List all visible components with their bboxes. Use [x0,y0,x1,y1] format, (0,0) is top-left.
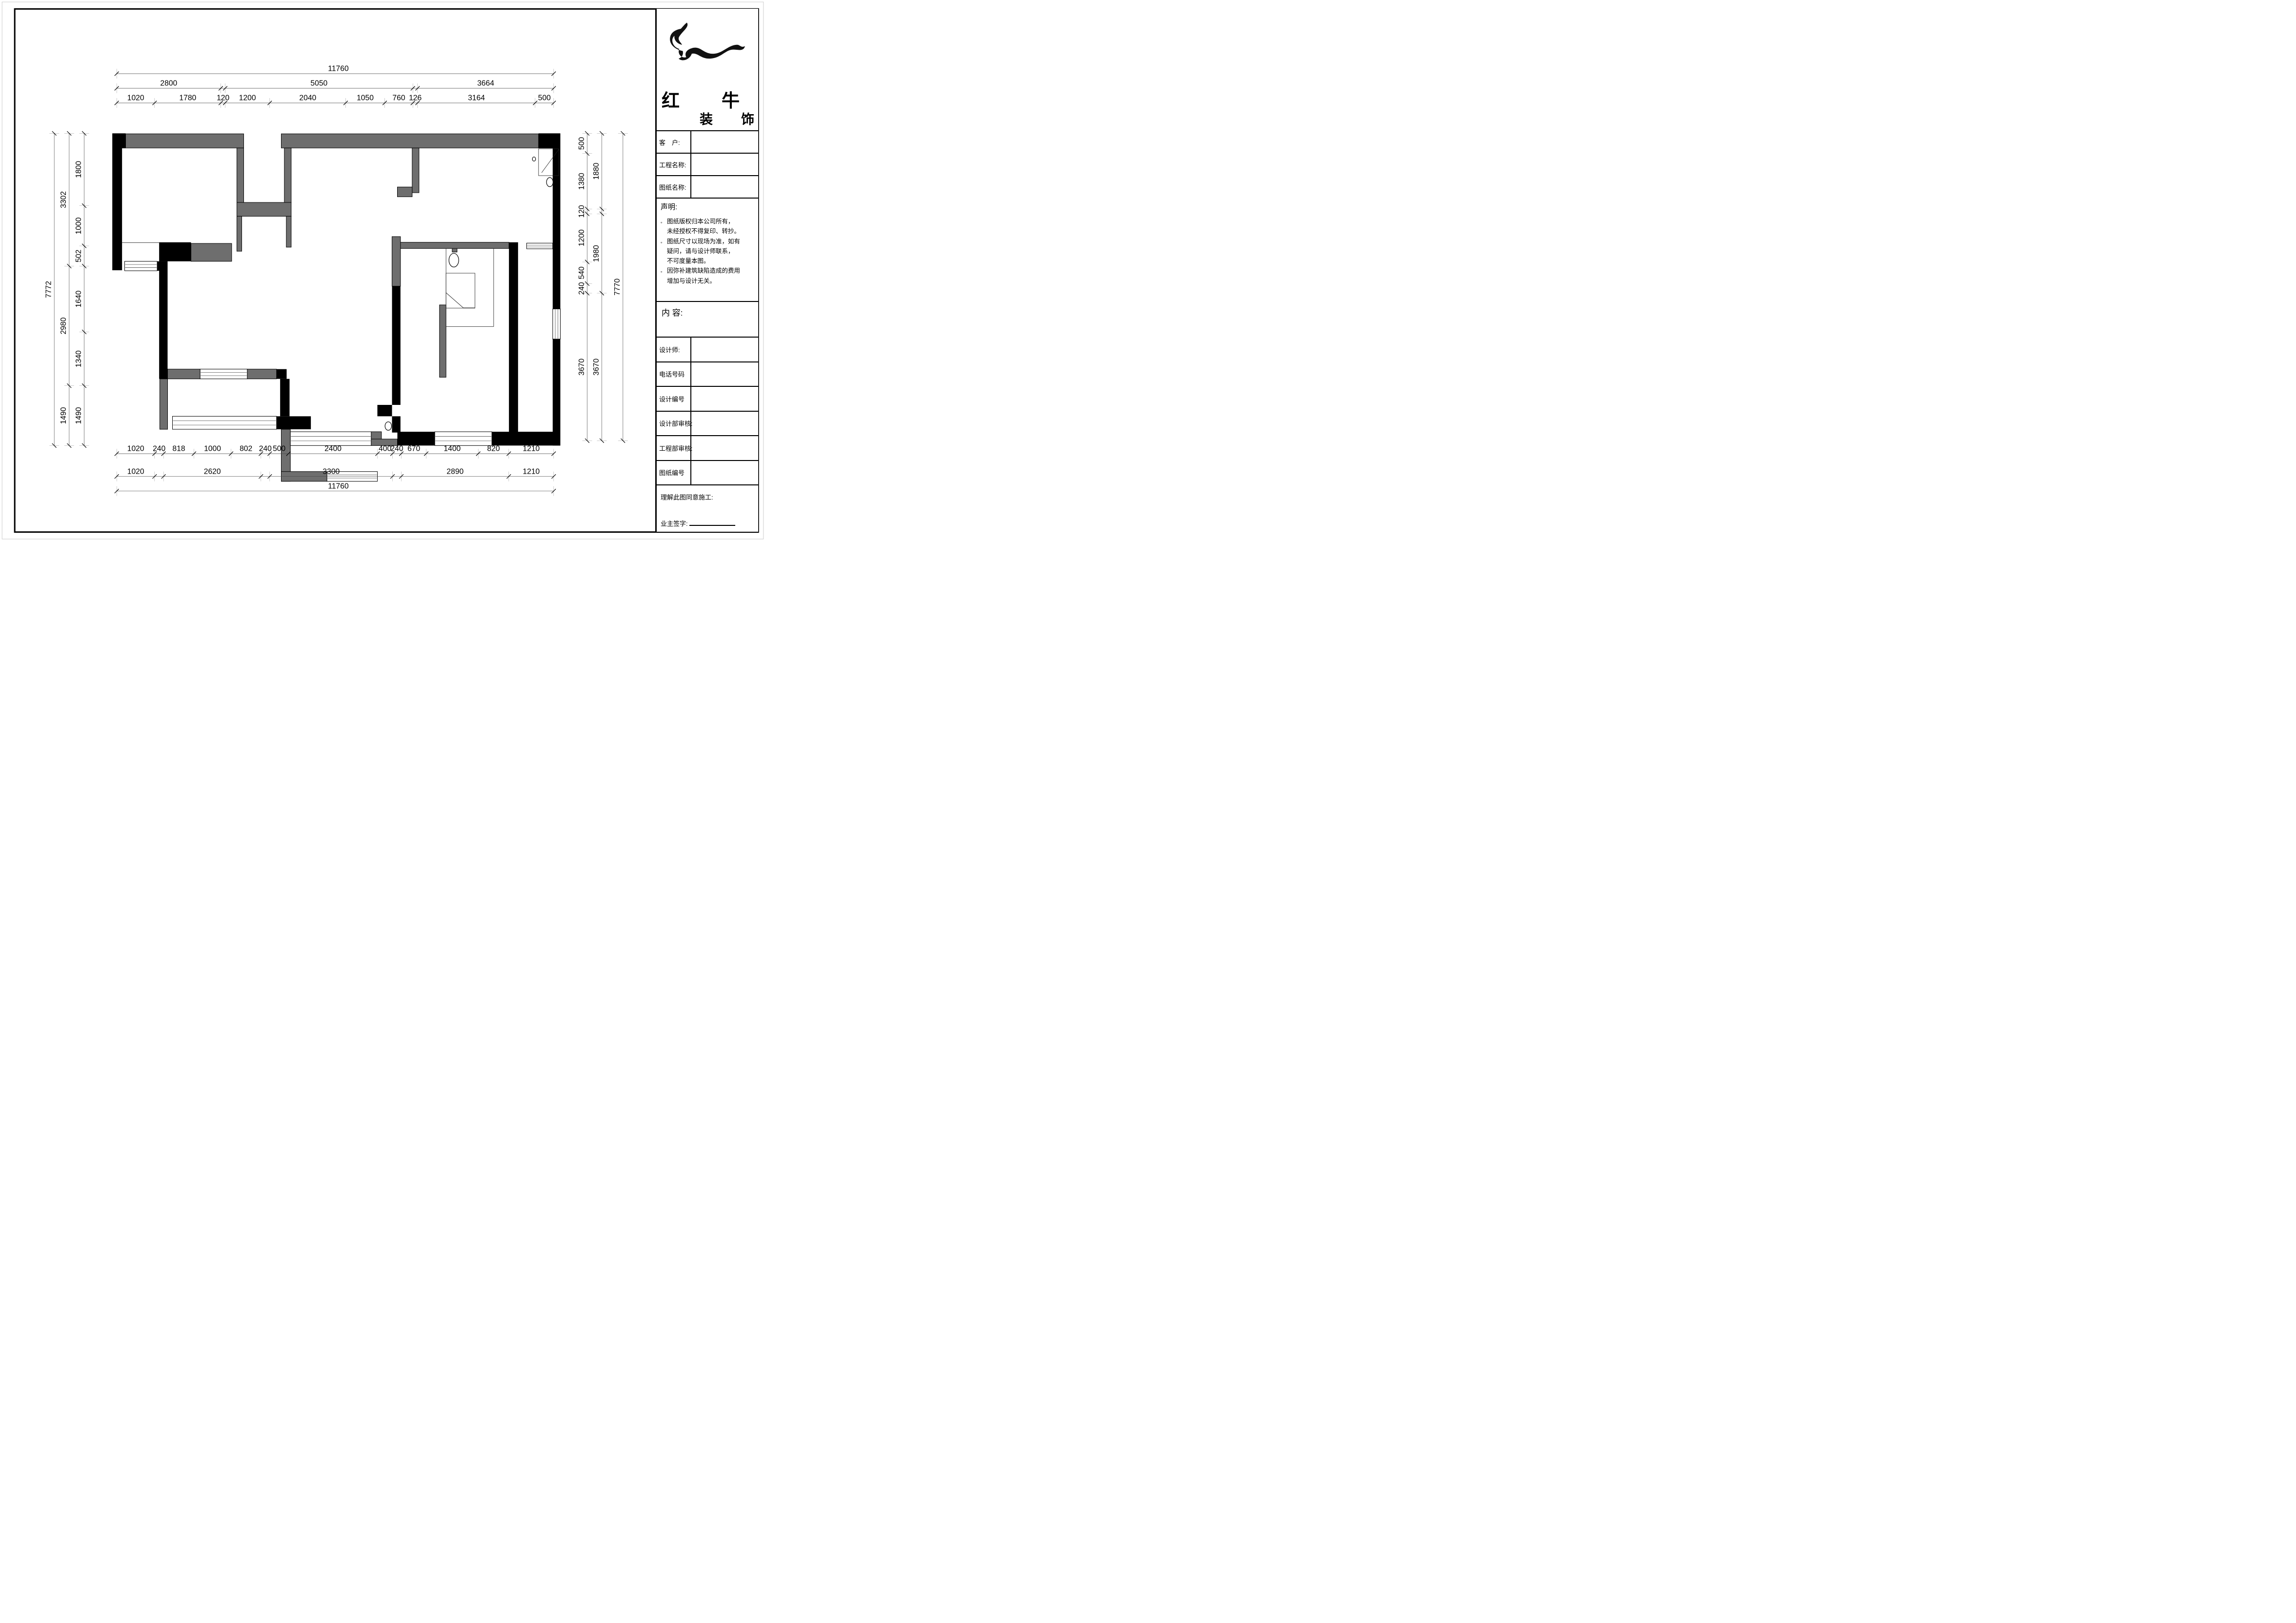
light-wall [168,369,201,379]
dimension-label: 2400 [324,445,342,453]
window [173,416,277,429]
statement-section: 声明: 。图纸版权归本公司所有， 未经授权不得复印、转抄。 。图纸尺寸以现场为准… [657,198,758,301]
light-wall [412,148,419,193]
dimension-label: 7772 [45,281,53,298]
light-wall [191,243,232,261]
statement-line: 图纸版权归本公司所有， [667,217,734,226]
dimension-label: 1020 [127,467,144,476]
agree-label: 理解此图同意施工: [661,492,755,501]
window [200,369,247,379]
floor-plan-canvas: 1176028005050366410201780120120020401050… [0,0,765,541]
dimension-label: 1380 [578,173,586,190]
field-project-name-label: 工程名称: [657,154,691,175]
dimension-label: 1000 [75,217,83,234]
wall [553,339,561,445]
dimension-label: 11760 [328,482,349,490]
fixture-ellipse [546,178,553,187]
light-wall [237,148,244,202]
wall [112,133,125,148]
dimension-label: 3164 [468,94,485,102]
bull-swoosh-icon [665,18,748,76]
fixture-ellipse [449,253,459,267]
dimension-label: 240 [259,445,272,453]
dimension-label: 818 [172,445,185,453]
content-section: 内 容: [657,301,758,337]
light-wall [247,369,277,379]
dimension-label: 3300 [322,467,340,476]
brand-suffix-char2: 饰 [741,109,754,128]
dimension-label: 2890 [446,467,463,476]
content-label: 内 容: [662,308,683,318]
window [290,432,371,445]
row-phone-label: 电话号码 [657,362,691,386]
light-wall [392,237,401,286]
dimension-label: 240 [153,445,165,453]
dimensions: 1176028005050366410201780120120020401050… [45,65,628,496]
light-wall [452,248,457,252]
wall [159,242,191,261]
dimension-label: 2620 [204,467,221,476]
bullet-dot: 。 [661,237,667,246]
dimension-label: 126 [409,94,422,102]
walls-structural [112,133,560,445]
sign-label: 业主签字: [661,520,688,527]
dimension-label: 1020 [127,445,144,453]
dimension-label: 240 [578,282,586,295]
dimension-label: 1640 [75,290,83,307]
field-drawing-name-label: 图纸名称: [657,176,691,198]
light-wall [400,242,509,249]
dimension-label: 1780 [179,94,196,102]
dimension-label: 1050 [357,94,374,102]
row-designer-label: 设计师: [657,338,691,361]
wall [398,432,435,445]
light-wall [160,379,168,429]
wall [392,286,401,405]
light-wall [126,134,244,148]
field-drawing-name: 图纸名称: [657,175,758,198]
wall [280,379,289,417]
row-design-audit-value [691,412,758,436]
dimension-label: 1490 [75,407,83,424]
light-wall [237,216,242,251]
dimension-label: 120 [217,94,229,102]
dimension-label: 2040 [299,94,316,102]
wall [277,369,287,379]
light-wall [286,216,291,247]
dimension-label: 500 [578,137,586,150]
row-phone: 电话号码 [657,361,758,386]
dimension-label: 1980 [592,245,601,262]
wall [112,148,122,270]
dimension-label: 820 [487,445,500,453]
fixtures [122,149,559,430]
brand-name-char1: 红 [662,86,680,112]
dimension-label: 1400 [443,445,461,453]
statement-line: 未经授权不得复印、转抄。 [667,226,740,236]
dimension-label: 11760 [328,65,349,73]
wall [509,242,518,432]
row-design-audit-label: 设计部审核: [657,412,691,436]
fixture-outline [446,273,475,308]
wall [277,416,311,429]
row-drawing-no: 图纸编号 [657,460,758,485]
field-project-name: 工程名称: [657,153,758,175]
field-customer-label: 客 户: [657,131,691,153]
window [125,261,158,271]
dimension-label: 1490 [60,407,68,424]
dimension-label: 2980 [60,317,68,334]
light-wall [282,134,539,148]
signoff-rows: 设计师: 电话号码 设计编号 设计部审核: 工程部审核: 图纸编号 [657,337,758,484]
row-engineering-audit-label: 工程部审核: [657,436,691,460]
light-wall [440,305,446,377]
dimension-label: 1210 [523,445,540,453]
window [435,432,492,445]
row-drawing-no-label: 图纸编号 [657,461,691,485]
statement-line: 疑问，请与设计师联系， [667,246,734,256]
dimension-label: 400 [379,445,391,453]
dimension-label: 2800 [160,80,177,88]
owner-signature-section: 理解此图同意施工: 业主签字: [657,484,758,532]
dimension-label: 1210 [523,467,540,476]
dimension-label: 3664 [477,80,494,88]
brand-area: 红 牛 装 饰 [657,9,758,130]
dimension-label: 120 [578,205,586,218]
dimension-label: 670 [407,445,420,453]
brand-name-char2: 牛 [722,86,740,112]
dimension-label: 3670 [578,359,586,376]
dimension-label: 802 [240,445,252,453]
dimension-label: 5050 [310,80,327,88]
dimension-label: 500 [538,94,551,102]
window [527,243,553,249]
dimension-label: 1000 [204,445,221,453]
row-engineering-audit: 工程部审核: [657,435,758,460]
wall [539,133,561,148]
statement-line: 因弥补建筑缺陷造成的费用 [667,266,740,276]
statement-line: 图纸尺寸以现场为准，如有 [667,237,740,246]
dimension-label: 3302 [60,191,68,208]
fixture-ellipse [385,422,391,430]
bullet-dot: 。 [661,217,667,226]
signature-line [689,518,735,526]
wall [159,261,167,379]
dimension-label: 7770 [613,279,622,296]
row-phone-value [691,362,758,386]
drawing-sheet: 1176028005050366410201780120120020401050… [0,0,765,541]
field-customer-value [691,131,758,153]
wall [553,148,561,309]
light-wall [237,202,291,216]
row-design-no: 设计编号 [657,386,758,411]
statement-line: 增加与设计无关。 [667,276,716,286]
light-wall [371,439,398,445]
sheet-frame [2,2,764,539]
wall [378,405,392,416]
statement-title: 声明: [661,201,755,212]
dimension-label: 1880 [592,162,601,180]
light-wall [398,187,412,197]
row-design-audit: 设计部审核: [657,411,758,436]
wall [492,432,560,445]
dimension-label: 1200 [239,94,256,102]
field-drawing-name-value [691,176,758,198]
title-block: 红 牛 装 饰 客 户: 工程名称: 图纸名称: 声明: 。图纸版权归本公司所有… [655,9,758,532]
dimension-label: 540 [578,266,586,279]
dimension-label: 760 [392,94,405,102]
row-design-no-label: 设计编号 [657,387,691,411]
dimension-label: 500 [273,445,285,453]
dimension-label: 1800 [75,161,83,178]
window [553,309,561,339]
brand-suffix-char1: 装 [700,109,713,128]
light-wall [371,432,382,439]
bullet-dot: 。 [661,266,667,276]
light-wall [284,148,291,202]
statement-line: 不可度量本图。 [667,256,710,266]
fixture-ellipse [532,157,536,161]
row-drawing-no-value [691,461,758,485]
dimension-label: 1020 [127,94,144,102]
dimension-label: 1340 [75,350,83,367]
dimension-label: 240 [390,445,403,453]
field-customer: 客 户: [657,130,758,153]
dimension-label: 3670 [592,359,601,376]
row-design-no-value [691,387,758,411]
field-project-name-value [691,154,758,175]
row-engineering-audit-value [691,436,758,460]
wall [392,416,401,432]
dimension-label: 502 [75,250,83,262]
dimension-label: 1200 [578,229,586,246]
row-designer-value [691,338,758,361]
row-designer: 设计师: [657,338,758,361]
